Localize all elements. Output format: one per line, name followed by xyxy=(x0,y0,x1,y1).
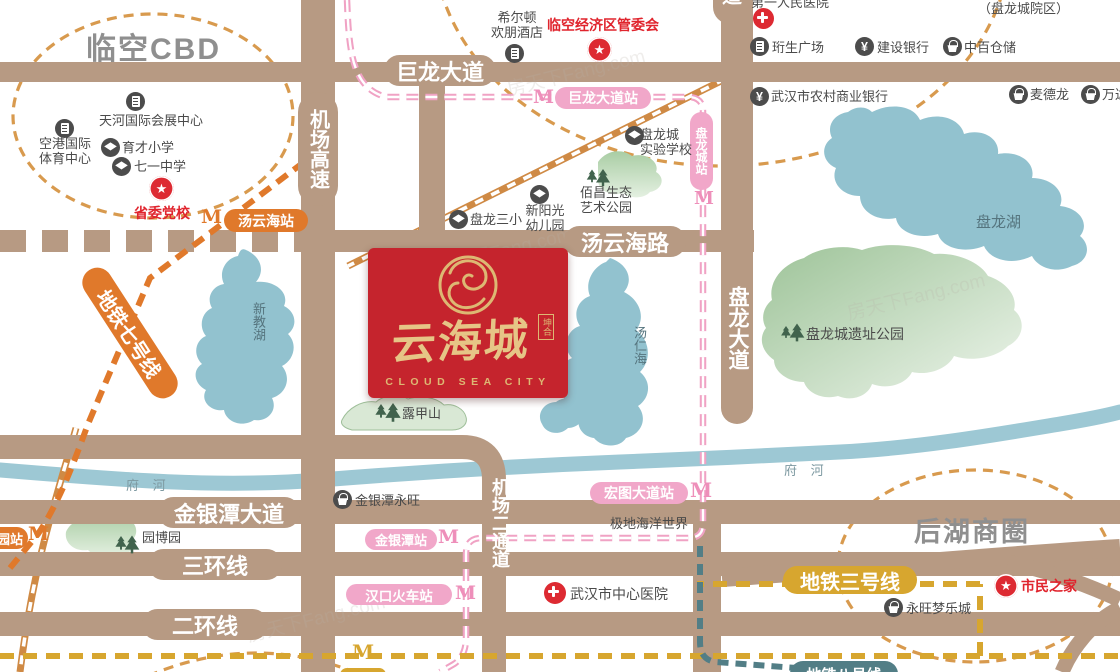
lake-label-tangrenhai: 汤仁海 xyxy=(630,326,649,365)
road-label-tangyunhai: 汤云海路 xyxy=(564,226,686,257)
school-icon xyxy=(101,138,120,157)
metro-m-yuanbo: M xyxy=(28,525,49,544)
logo-seal: 坤合 xyxy=(538,314,554,340)
school-icon xyxy=(112,157,131,176)
store-icon xyxy=(1009,85,1028,104)
poi-qiyi-middle: 七一中学 xyxy=(134,159,186,174)
area-label-houhu: 后湖商圈 xyxy=(914,510,1030,549)
poi-yuanboyuan: 园博园 xyxy=(142,530,181,545)
poi-hengsheng-plaza: 珩生广场 xyxy=(772,40,824,55)
poi-rural-bank: 武汉市农村商业银行 xyxy=(771,89,888,104)
lake-label-xinjiaohu: 新教湖 xyxy=(249,302,268,341)
store-icon xyxy=(333,490,352,509)
poi-panlong-sanxiao: 盘龙三小 xyxy=(470,212,522,227)
road-label-julong-dadao: 巨龙大道 xyxy=(384,55,496,86)
lake-xinjiaohu xyxy=(196,249,295,423)
road-label-panlong-dadao: 盘龙大道 xyxy=(720,250,754,406)
school-icon xyxy=(449,210,468,229)
hospital-cross-icon xyxy=(753,8,774,29)
poi-citizens-home: 市民之家 xyxy=(1021,578,1077,595)
poi-linkong-mgmt: 临空经济区管委会 xyxy=(547,17,659,34)
metro-pill-fragment xyxy=(340,668,386,672)
bank-icon xyxy=(750,87,769,106)
poi-hilton: 希尔顿欢朋酒店 xyxy=(486,11,548,41)
bank-icon xyxy=(855,37,874,56)
park-ruins xyxy=(762,245,1022,398)
poi-lujiashan: 露甲山 xyxy=(402,406,441,421)
road-label-erhuan: 二环线 xyxy=(142,609,268,640)
store-icon xyxy=(884,598,903,617)
poi-wanda: 万达 xyxy=(1102,87,1120,102)
station-hongtu-dadao: 宏图大道站 xyxy=(590,482,688,504)
poi-maidelong: 麦德龙 xyxy=(1030,87,1069,102)
poi-baichang-park: 佰昌生态艺术公园 xyxy=(580,186,638,216)
logo-name-en: CLOUD SEA CITY xyxy=(368,376,568,388)
poi-xinyangguang-kg: 新阳光幼儿园 xyxy=(521,204,569,234)
building-icon xyxy=(505,44,524,63)
poi-tianhe-expo: 天河国际会展中心 xyxy=(99,113,203,128)
station-julong-dadao: 巨龙大道站 xyxy=(555,87,651,109)
area-label-linkong-cbd: 临空CBD xyxy=(86,24,221,68)
poi-ruins-park: 盘龙城遗址公园 xyxy=(806,326,904,343)
metro-m-hongtu: M xyxy=(690,480,712,500)
road-label-sanhuan: 三环线 xyxy=(148,549,282,580)
building-icon xyxy=(126,92,145,111)
station-tangyunhai: 汤云海站 xyxy=(224,209,308,232)
star-icon xyxy=(587,37,612,62)
poi-ccb-bank: 建设银行 xyxy=(877,40,929,55)
station-hankou-railway: 汉口火车站 xyxy=(346,584,452,605)
school-icon xyxy=(530,185,549,204)
poi-shengwei-dangxiao: 省委党校 xyxy=(134,205,190,222)
location-map: 房天下Fang.com 房天下Fang.com 房天下Fang.com 房天下F… xyxy=(0,0,1120,672)
metro-line3-label: 地铁三号线 xyxy=(783,566,917,594)
lake-label-panlonghu: 盘龙湖 xyxy=(976,211,1021,232)
poi-plc-campus: （盘龙城院区） xyxy=(978,1,1069,16)
station-yuanbo-fragment: 园站 xyxy=(0,527,28,549)
lake-panlonghu xyxy=(824,106,1087,269)
poi-konggang-sports: 空港国际体育中心 xyxy=(36,137,94,167)
river-label-fuhe-east: 府 河 xyxy=(784,460,829,479)
logo-name-cn: 云海城 xyxy=(366,303,556,373)
store-icon xyxy=(943,37,962,56)
poi-yucai-primary: 育才小学 xyxy=(122,140,174,155)
project-logo: 云海城 坤合 CLOUD SEA CITY xyxy=(368,248,568,398)
poi-jyt-aeon: 金银潭永旺 xyxy=(355,493,420,508)
star-icon xyxy=(149,176,174,201)
metro-m-hankou: M xyxy=(455,584,476,603)
station-jinyintan: 金银潭站 xyxy=(365,529,437,550)
metro-m-line3: M xyxy=(352,642,374,662)
poi-plc-school: 盘龙城实验学校 xyxy=(640,128,698,158)
hospital-cross-icon xyxy=(544,582,566,604)
metro-m-jinyintan: M xyxy=(438,528,459,547)
poi-zhongbai: 中百仓储 xyxy=(964,40,1016,55)
road-label-jinyintan-dadao: 金银潭大道 xyxy=(158,497,300,528)
store-icon xyxy=(1081,85,1100,104)
building-icon xyxy=(750,37,769,56)
river-label-fuhe-west: 府 河 xyxy=(126,475,171,494)
star-icon xyxy=(994,574,1018,598)
metro-m-tangyunhai: M xyxy=(201,208,222,227)
metro-line8-label: 地铁八号线 xyxy=(790,661,898,672)
metro-m-julong: M xyxy=(533,88,554,107)
poi-aeon-dream: 永旺梦乐城 xyxy=(906,601,971,616)
poi-center-hospital: 武汉市中心医院 xyxy=(570,586,668,603)
poi-polar-ocean: 极地海洋世界 xyxy=(610,516,688,531)
road-label-jichang-gaosu: 机场高速 xyxy=(298,92,338,206)
road-label-jichang-ertongdao: 机场二通道 xyxy=(485,458,515,588)
metro-m-panlongcheng: M xyxy=(694,190,714,208)
